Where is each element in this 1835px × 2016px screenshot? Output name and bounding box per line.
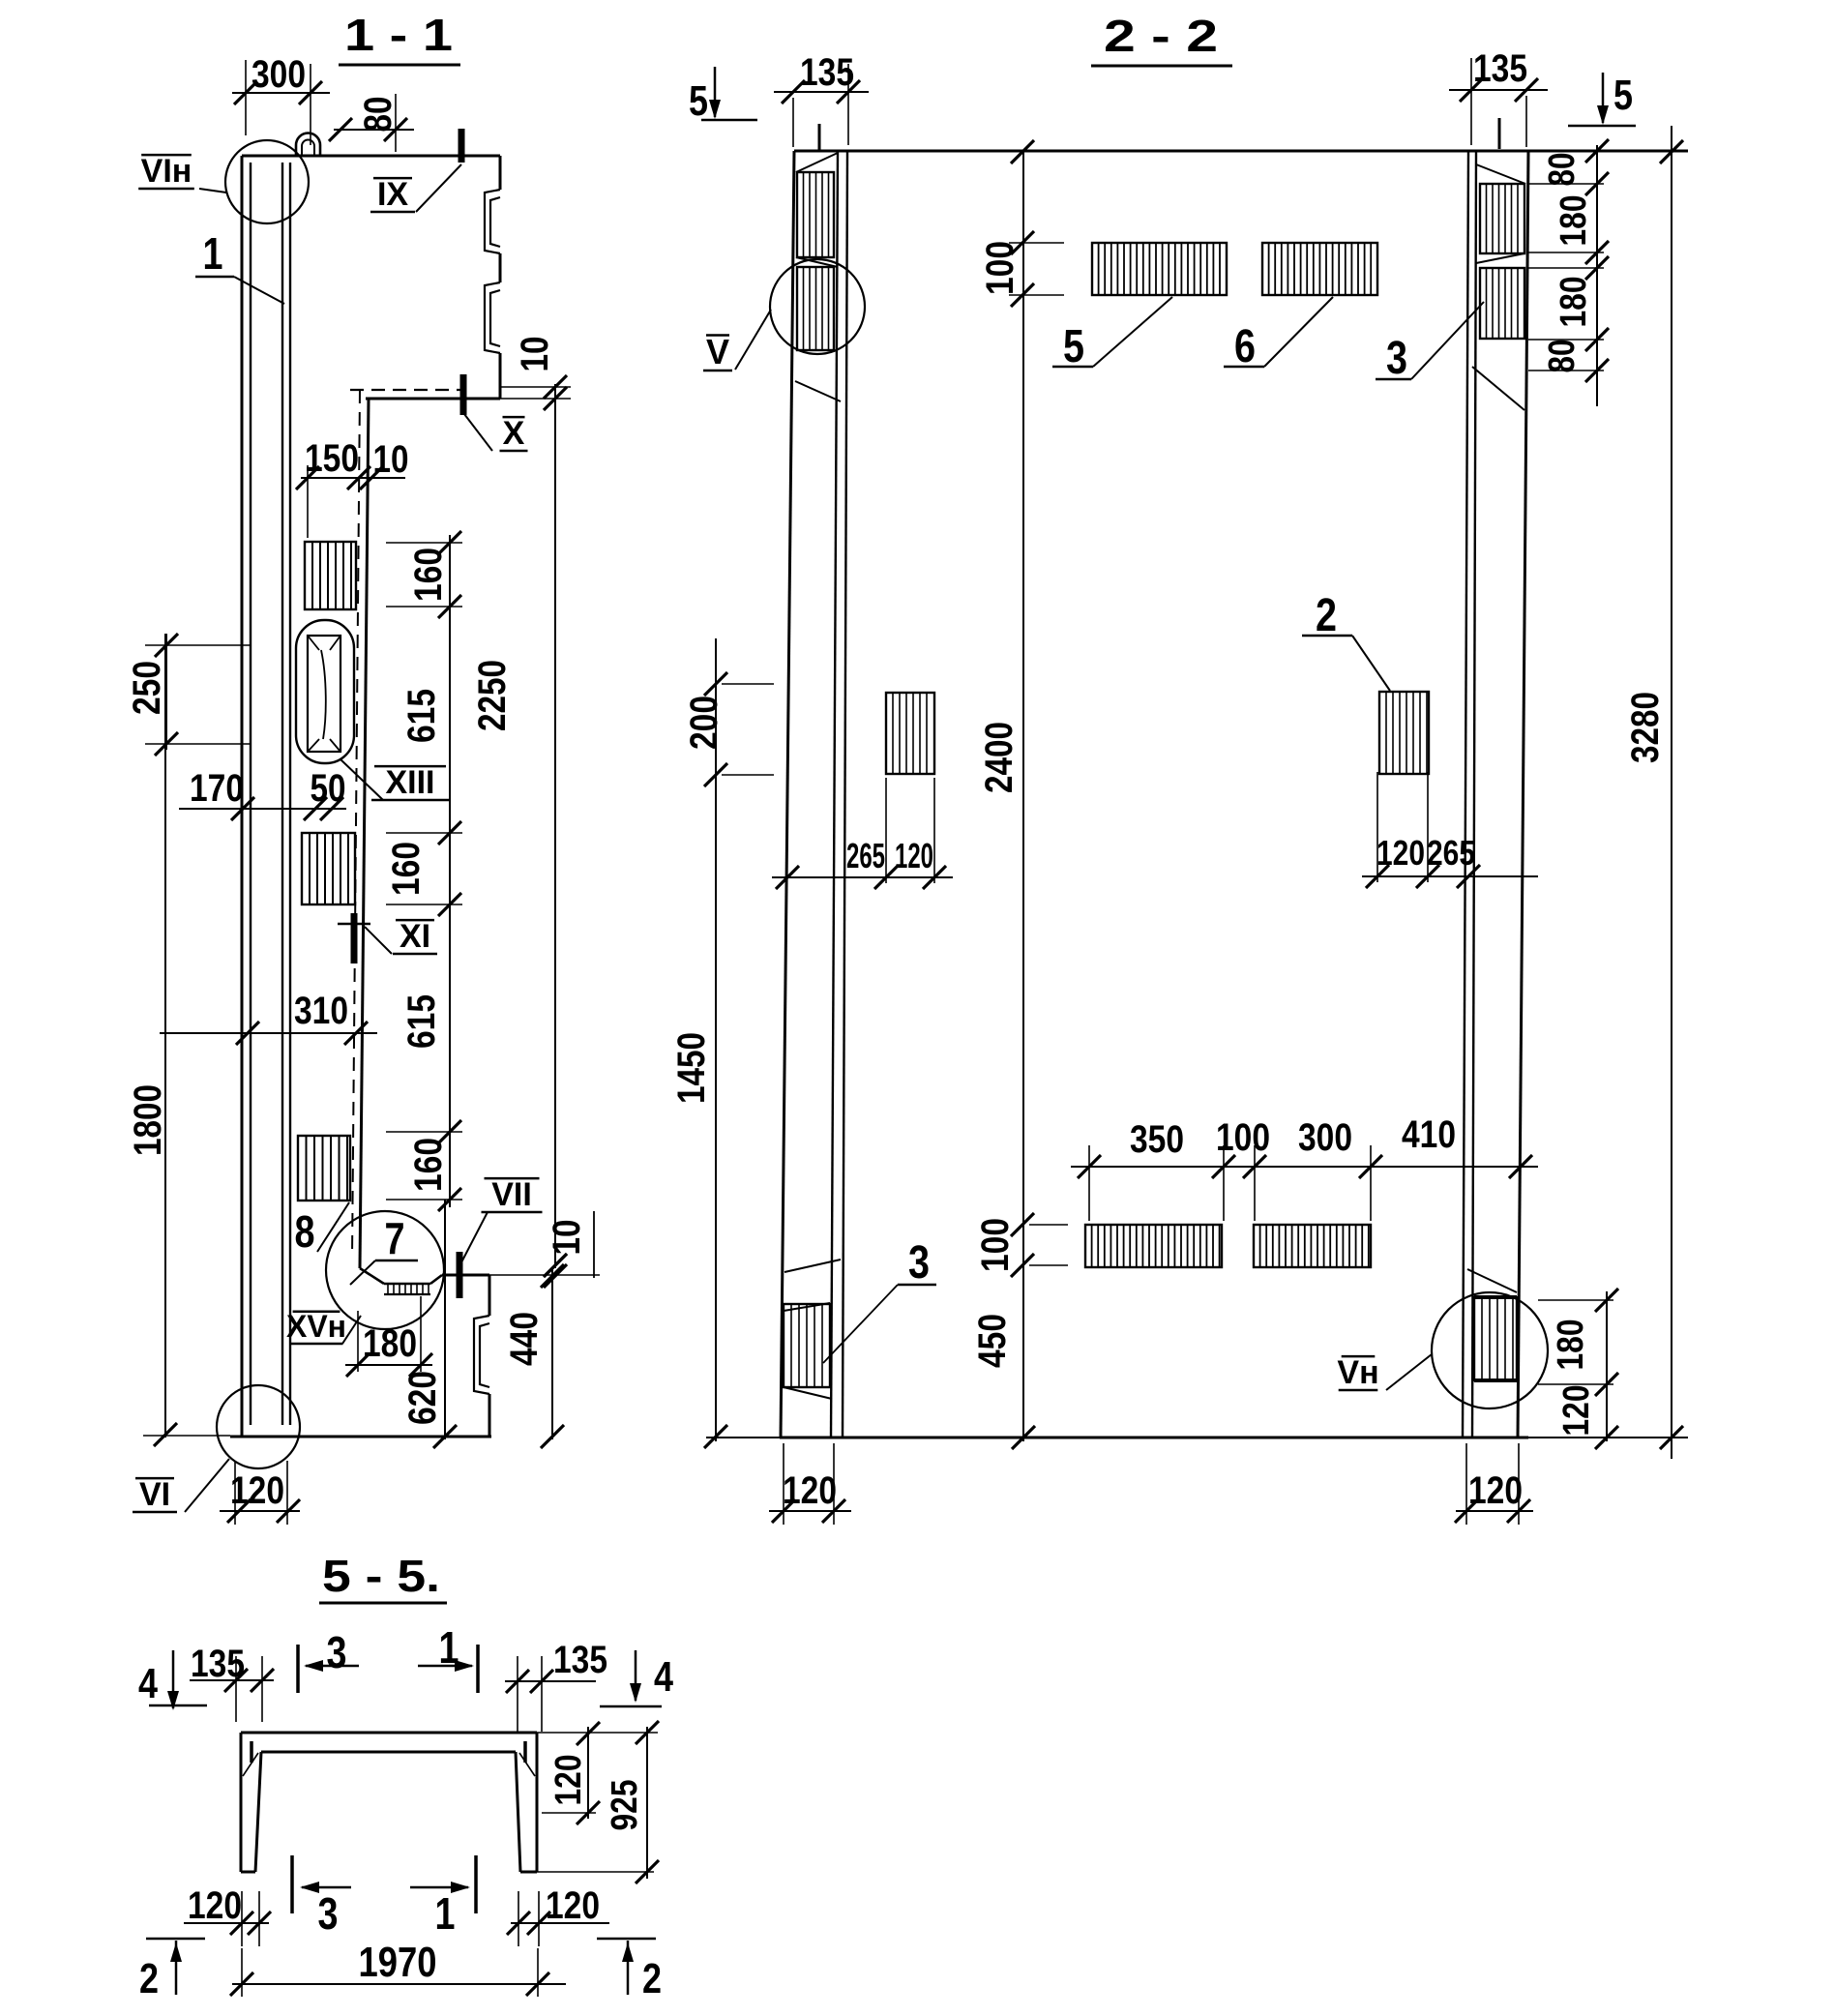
svg-text:265: 265	[1427, 833, 1475, 873]
svg-text:2: 2	[1316, 590, 1337, 641]
svg-text:80: 80	[1542, 340, 1583, 373]
svg-text:VII: VII	[491, 1176, 532, 1213]
svg-text:3: 3	[908, 1237, 930, 1289]
svg-text:120: 120	[1468, 1469, 1523, 1512]
svg-text:160: 160	[385, 842, 428, 896]
svg-text:XIII: XIII	[385, 764, 434, 801]
svg-text:200: 200	[683, 696, 725, 750]
svg-text:120: 120	[188, 1884, 242, 1927]
svg-text:3: 3	[327, 1627, 347, 1677]
svg-text:IX: IX	[377, 176, 408, 213]
svg-text:120: 120	[1556, 1385, 1597, 1437]
svg-text:250: 250	[126, 661, 168, 715]
svg-text:120: 120	[1376, 833, 1425, 873]
svg-text:170: 170	[190, 767, 244, 810]
svg-text:350: 350	[1130, 1118, 1184, 1161]
svg-text:410: 410	[1402, 1113, 1456, 1156]
svg-text:925: 925	[605, 1780, 645, 1831]
svg-text:4: 4	[654, 1653, 673, 1701]
svg-text:80: 80	[357, 97, 400, 133]
svg-text:450: 450	[971, 1314, 1014, 1368]
svg-text:620: 620	[401, 1371, 444, 1425]
svg-text:3280: 3280	[1624, 692, 1667, 763]
svg-text:180: 180	[1554, 195, 1594, 247]
svg-text:180: 180	[1551, 1319, 1591, 1371]
svg-text:3: 3	[1386, 333, 1407, 384]
svg-text:V: V	[706, 332, 729, 371]
svg-text:3: 3	[318, 1888, 339, 1939]
svg-text:300: 300	[1298, 1116, 1352, 1159]
svg-text:10: 10	[373, 438, 409, 481]
svg-text:310: 310	[294, 990, 348, 1032]
svg-text:7: 7	[385, 1213, 405, 1263]
svg-text:VI: VI	[139, 1476, 170, 1513]
svg-text:120: 120	[548, 1755, 589, 1806]
svg-text:180: 180	[1554, 277, 1594, 328]
svg-text:8: 8	[295, 1206, 315, 1257]
svg-text:2250: 2250	[471, 660, 514, 731]
svg-text:160: 160	[407, 548, 450, 602]
svg-text:6: 6	[1234, 321, 1256, 372]
svg-text:120: 120	[546, 1884, 600, 1927]
svg-text:1 - 1: 1 - 1	[344, 10, 453, 60]
svg-text:180: 180	[363, 1322, 417, 1365]
svg-text:2: 2	[642, 1955, 662, 2002]
svg-text:1450: 1450	[670, 1032, 713, 1104]
svg-text:80: 80	[1542, 153, 1583, 187]
svg-text:100: 100	[974, 1218, 1017, 1272]
svg-text:265: 265	[846, 836, 885, 875]
svg-text:1: 1	[435, 1888, 456, 1939]
svg-text:10: 10	[546, 1220, 588, 1256]
svg-text:160: 160	[407, 1138, 450, 1192]
svg-text:1970: 1970	[359, 1939, 437, 1986]
svg-text:5: 5	[689, 77, 708, 125]
svg-text:135: 135	[553, 1639, 607, 1681]
svg-text:615: 615	[400, 994, 443, 1049]
svg-text:135: 135	[800, 51, 854, 94]
svg-text:XI: XI	[400, 918, 430, 955]
svg-text:VIн: VIн	[141, 153, 192, 190]
svg-text:120: 120	[895, 836, 933, 875]
svg-text:300: 300	[252, 53, 306, 96]
svg-text:4: 4	[138, 1660, 158, 1707]
svg-text:10: 10	[514, 337, 556, 372]
svg-text:50: 50	[311, 767, 346, 810]
svg-text:2400: 2400	[978, 722, 1021, 793]
svg-text:5: 5	[1063, 321, 1084, 372]
svg-text:2 - 2: 2 - 2	[1104, 11, 1218, 61]
svg-text:440: 440	[503, 1312, 546, 1366]
svg-text:X: X	[503, 415, 525, 452]
svg-text:Vн: Vн	[1337, 1354, 1378, 1391]
svg-text:2: 2	[139, 1955, 159, 2002]
svg-text:5 - 5.: 5 - 5.	[322, 1551, 440, 1601]
svg-text:XVн: XVн	[286, 1309, 346, 1344]
svg-text:5: 5	[1613, 72, 1633, 119]
svg-text:120: 120	[230, 1469, 284, 1512]
svg-text:1800: 1800	[127, 1084, 169, 1156]
svg-text:615: 615	[400, 689, 443, 743]
svg-text:1: 1	[203, 228, 223, 279]
svg-text:135: 135	[1473, 47, 1527, 90]
